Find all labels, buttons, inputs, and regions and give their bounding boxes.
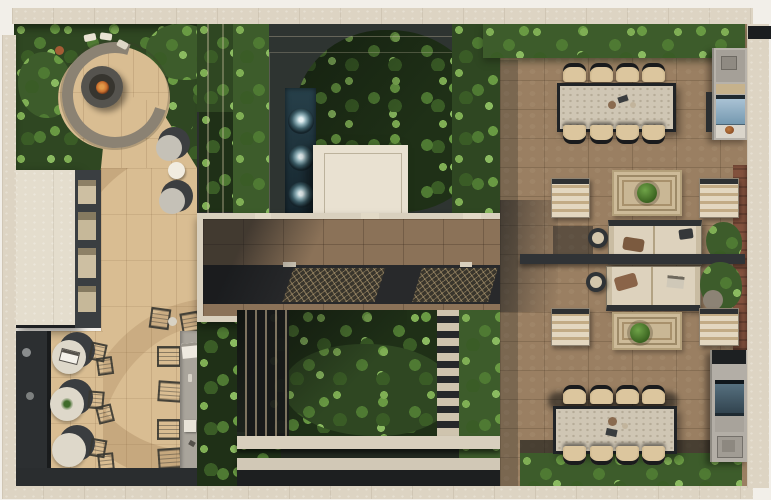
stair-mesh-2 xyxy=(412,268,498,302)
dining-s-chair-6 xyxy=(590,446,613,465)
wall-left xyxy=(2,35,16,488)
courtyard-lower xyxy=(237,310,500,488)
bench-cushion-2 xyxy=(100,32,113,41)
dining-n-chair-2 xyxy=(590,63,613,82)
kitchen-n-frame xyxy=(706,92,712,132)
sofa-n-blanket xyxy=(622,236,645,252)
centerpiece-s-bowl xyxy=(608,417,617,426)
sofa-s-jacket xyxy=(613,272,638,292)
sun-chair-4 xyxy=(157,447,182,470)
service-bottle xyxy=(188,374,192,382)
roof-notch xyxy=(748,26,771,39)
side-table-north-top xyxy=(592,232,604,244)
planter-north xyxy=(483,24,745,58)
wall-right xyxy=(747,24,769,488)
lower-bar-item-1 xyxy=(22,348,31,357)
kitchen-north xyxy=(712,48,749,140)
rooftop-render xyxy=(0,0,771,500)
kitchen-n-roast xyxy=(725,126,734,134)
bridge-beam-tab-3 xyxy=(463,213,481,219)
courtyard-wall-planting-left xyxy=(233,22,269,215)
terracotta-pot xyxy=(55,46,64,55)
sofa-south xyxy=(606,266,701,311)
bridge-walkway xyxy=(197,213,545,322)
cafe-plant-sprig xyxy=(61,398,73,410)
pergola-beam-1 xyxy=(207,22,209,215)
armchair-se xyxy=(699,308,739,346)
dining-s-chair-1 xyxy=(563,385,586,404)
slat-screen-left xyxy=(245,310,289,440)
slat-column-right xyxy=(437,310,459,443)
bridge-step-edge-1 xyxy=(283,262,296,267)
stair-tower-roof xyxy=(313,145,408,215)
kitchen-s-hood xyxy=(712,350,746,364)
armchair-ne xyxy=(699,178,739,218)
dining-s-chair-2 xyxy=(590,385,613,404)
bar-unit-2 xyxy=(78,212,96,240)
pergola-planting-top xyxy=(197,22,237,112)
mid-deck-table xyxy=(168,317,177,326)
dining-n-chair-3 xyxy=(616,63,639,82)
courtyard-beam-1 xyxy=(237,436,500,449)
dining-s-chair-3 xyxy=(616,385,639,404)
dining-n-chair-7 xyxy=(616,125,639,144)
courtyard-beam-2 xyxy=(237,458,500,470)
spa-dome-2 xyxy=(288,145,314,171)
bar-unit-4 xyxy=(78,286,96,312)
pergola-beam-2 xyxy=(222,22,224,215)
wall-bottom xyxy=(2,486,753,499)
service-box xyxy=(184,420,196,432)
rug-south xyxy=(612,312,682,350)
dining-s-chair-5 xyxy=(563,446,586,465)
centerpiece-s-board xyxy=(605,428,617,437)
dining-s-chair-7 xyxy=(616,446,639,465)
grill-north xyxy=(716,95,745,127)
centerpiece-board xyxy=(617,95,628,104)
dining-s-chair-4 xyxy=(642,385,665,404)
side-table-south-top xyxy=(590,276,602,288)
sofa-n-cushion-item xyxy=(678,228,693,240)
sofa-s-tray xyxy=(666,275,684,289)
lower-bar-item-2 xyxy=(26,392,34,400)
topiary-north xyxy=(637,183,657,203)
centerpiece-bowl xyxy=(608,101,616,109)
cafe-chair-2 xyxy=(96,356,114,376)
bridge-beam-tab-2 xyxy=(361,213,379,219)
bar-building-roof xyxy=(12,170,75,328)
lounge-divider-wall xyxy=(520,254,745,264)
sun-chair-1 xyxy=(157,346,181,367)
kitchen-s-sink-bowl xyxy=(722,440,735,452)
pergola-planting-mid xyxy=(199,112,235,212)
wall-top xyxy=(12,8,753,24)
grill-south xyxy=(715,380,744,416)
fire-embers xyxy=(96,81,109,94)
garden-bottom-shadow xyxy=(14,468,204,487)
kitchen-n-shelf xyxy=(716,84,745,94)
topiary-south xyxy=(630,323,650,343)
kitchen-n-sink xyxy=(721,56,737,70)
parasol-side-table xyxy=(168,162,185,179)
pergola-planting-bottom xyxy=(197,312,237,488)
courtyard-upper xyxy=(237,22,500,215)
dining-s-chair-8 xyxy=(642,446,665,465)
dining-n-chair-4 xyxy=(642,63,665,82)
dining-n-chair-5 xyxy=(563,125,586,144)
stair-mesh-1 xyxy=(282,268,385,302)
centerpiece-plate xyxy=(630,102,636,108)
bar-unit-3 xyxy=(78,248,96,278)
dining-n-chair-6 xyxy=(590,125,613,144)
dining-n-chair-1 xyxy=(563,63,586,82)
centerpiece-s-plate xyxy=(622,423,628,429)
parasol-1 xyxy=(158,127,190,159)
spa-dome-1 xyxy=(288,108,314,134)
bridge-beam-tab-1 xyxy=(255,213,271,219)
cafe-table-3 xyxy=(52,433,86,467)
armchair-sw xyxy=(551,308,590,346)
parasol-2 xyxy=(161,180,193,212)
stair-tower-frame xyxy=(324,153,402,217)
kitchen-s-counter xyxy=(715,416,744,432)
bar-unit-1 xyxy=(78,180,96,204)
sun-chair-3 xyxy=(157,419,181,440)
kitchen-south xyxy=(710,350,748,462)
armchair-nw xyxy=(551,178,590,218)
spa-dome-3 xyxy=(288,182,314,208)
rug-north xyxy=(612,170,682,216)
sun-chair-2 xyxy=(157,380,182,403)
bridge-step-edge-2 xyxy=(460,262,472,267)
plant-pot-south xyxy=(703,290,723,310)
dining-n-chair-8 xyxy=(642,125,665,144)
